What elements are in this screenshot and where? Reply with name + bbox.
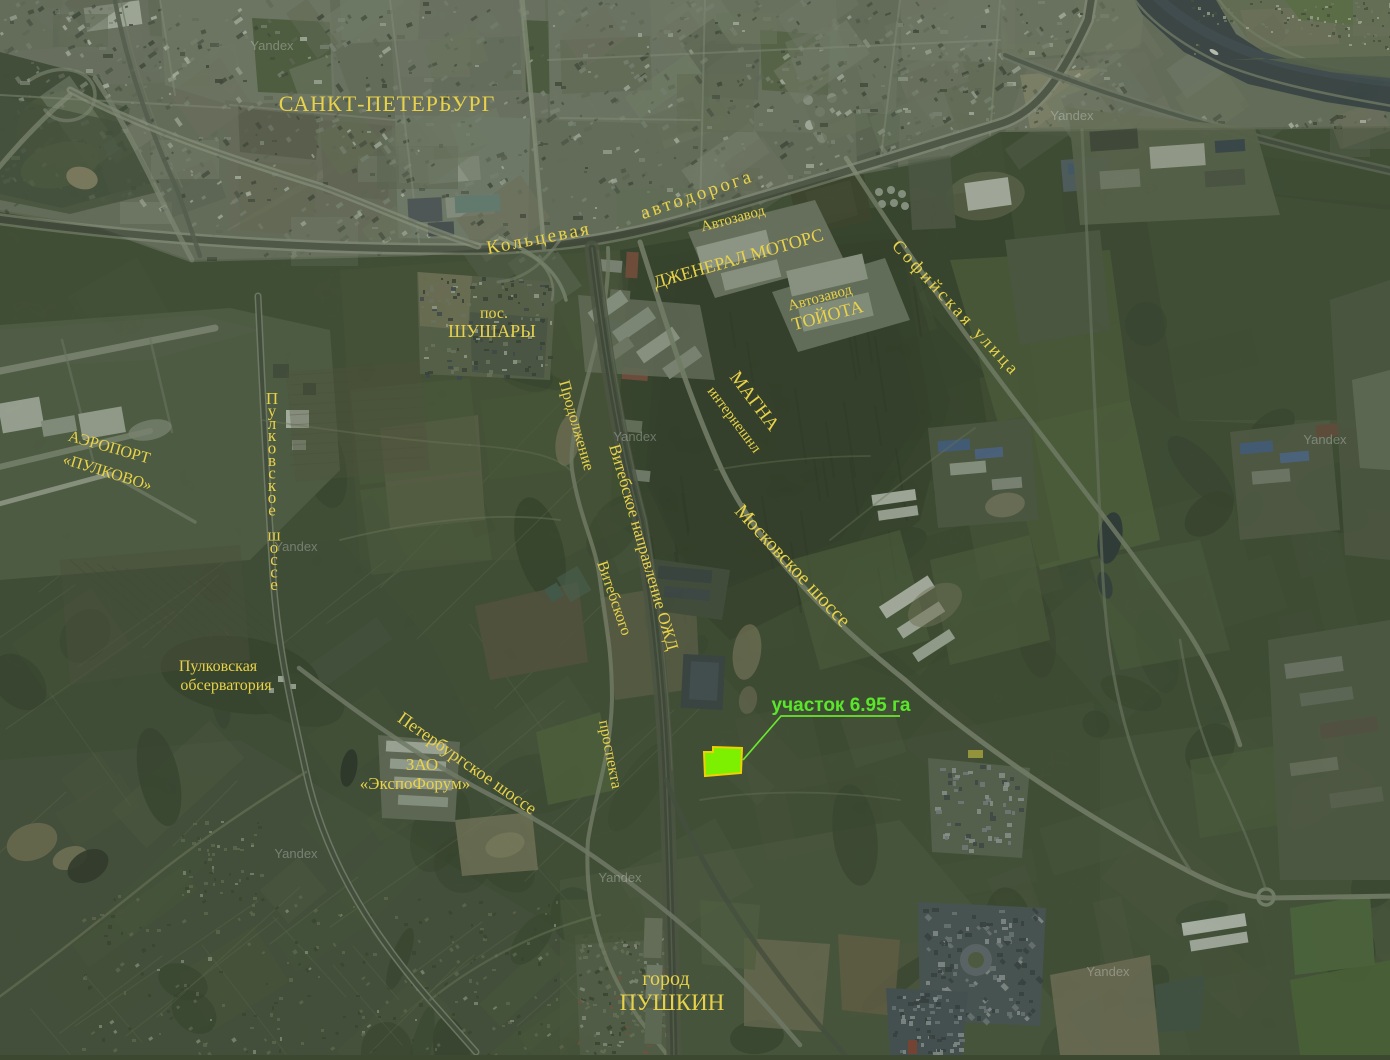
svg-text:ШУШАРЫ: ШУШАРЫ	[448, 321, 536, 341]
svg-text:Yandex: Yandex	[1050, 108, 1094, 123]
svg-text:е: е	[268, 501, 276, 520]
svg-text:участок 6.95 га: участок 6.95 га	[772, 695, 911, 716]
svg-text:Yandex: Yandex	[598, 870, 642, 885]
svg-text:пос.: пос.	[480, 305, 508, 322]
svg-text:Yandex: Yandex	[1303, 432, 1347, 447]
svg-text:обсерватория: обсерватория	[180, 677, 272, 694]
svg-text:ПУШКИН: ПУШКИН	[620, 990, 725, 1015]
svg-text:Yandex: Yandex	[250, 38, 294, 53]
svg-text:Yandex: Yandex	[613, 429, 657, 444]
svg-text:город: город	[642, 968, 689, 990]
svg-text:Пулковская: Пулковская	[179, 658, 258, 675]
svg-text:ЗАО: ЗАО	[406, 755, 438, 774]
svg-text:Yandex: Yandex	[274, 846, 318, 861]
svg-text:Yandex: Yandex	[274, 539, 318, 554]
svg-text:«ЭкспоФорум»: «ЭкспоФорум»	[360, 774, 470, 793]
svg-text:Yandex: Yandex	[1086, 964, 1130, 979]
svg-text:е: е	[270, 575, 278, 594]
svg-text:САНКТ-ПЕТЕРБУРГ: САНКТ-ПЕТЕРБУРГ	[279, 91, 496, 116]
